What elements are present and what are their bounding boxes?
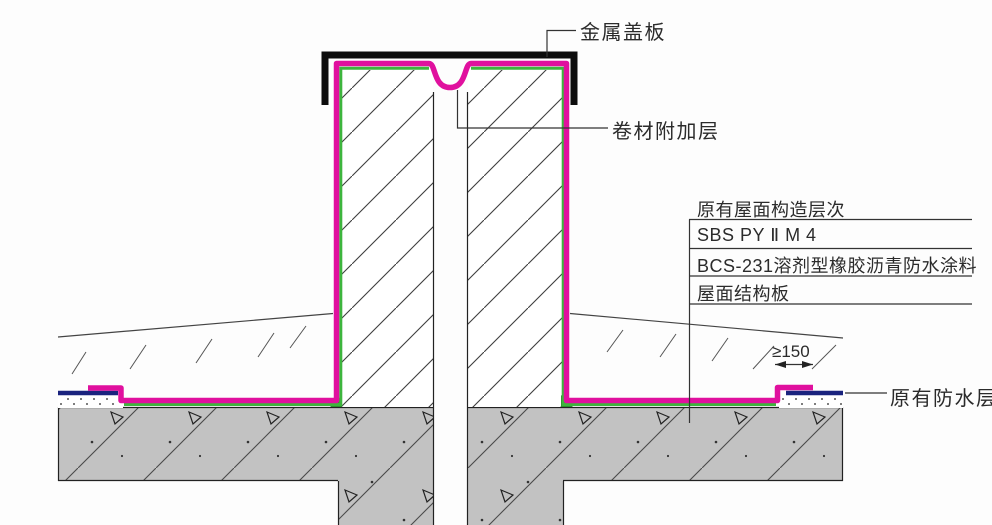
dim-arrow-left — [775, 361, 786, 368]
dimension-150 — [775, 361, 813, 368]
layer-table-title: 原有屋面构造层次 — [697, 196, 845, 222]
layer-table-row-sbs: SBS PY Ⅱ M 4 — [697, 225, 817, 246]
curb-wall-left — [341, 70, 433, 407]
screed-hatch-marks — [72, 326, 836, 374]
concrete-slab-left — [58, 407, 433, 525]
dim-arrow-right — [802, 361, 813, 368]
label-dimension: ≥150 — [772, 342, 810, 362]
drawing-canvas: 金属盖板 卷材附加层 原有屋面构造层次 SBS PY Ⅱ M 4 BCS-231… — [0, 0, 992, 525]
concrete-slab-right — [468, 407, 843, 525]
existing-layer-substrate-right — [779, 396, 843, 409]
layer-table-row-slab: 屋面结构板 — [697, 280, 790, 306]
label-existing-waterproof: 原有防水层 — [890, 382, 992, 411]
screed-slope-line-right — [570, 314, 843, 339]
layer-table-row-bcs: BCS-231溶剂型橡胶沥青防水涂料 — [697, 252, 977, 278]
label-metal-cover: 金属盖板 — [580, 16, 666, 45]
label-membrane-strip: 卷材附加层 — [612, 115, 720, 144]
existing-layer-substrate-left — [58, 396, 123, 409]
screed-slope-line-left — [58, 314, 333, 338]
curb-wall-right — [468, 70, 562, 407]
